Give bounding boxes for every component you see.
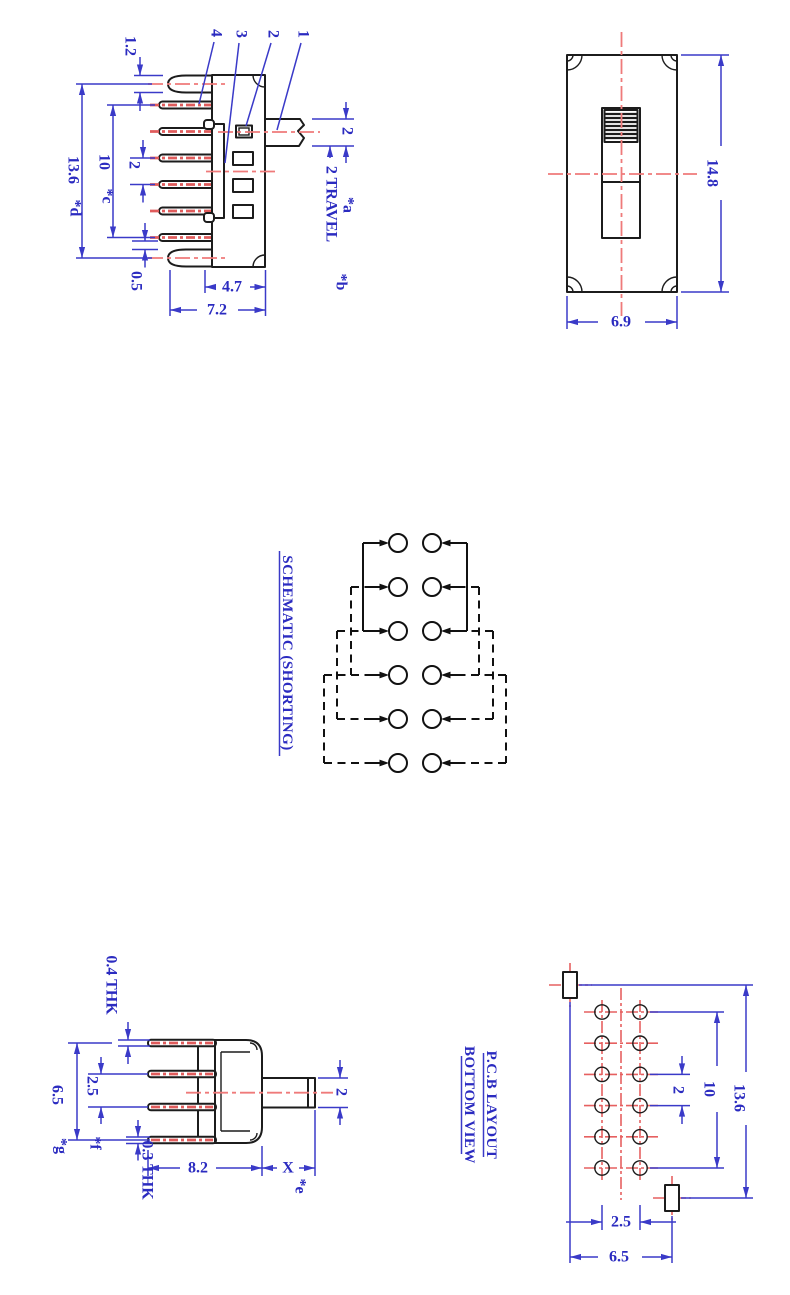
dim-body-depth: 8.2 [188, 1160, 208, 1177]
pcb-title-line2: BOTTOM VIEW [461, 1046, 477, 1164]
datasheet-drawing-page: 1.2 4 3 2 1 13.6 *d 10 *c 2 0.5 4.7 *b 7… [0, 0, 790, 1295]
dim-width: 6.9 [611, 314, 631, 331]
arrowhead-icon [441, 716, 451, 723]
pcb-title-line1: P.C.B LAYOUT [483, 1051, 499, 1160]
dim-actuator-thickness-end: 2 [333, 1088, 350, 1096]
dim-height-ref: *g [53, 1138, 70, 1154]
dim-terminal-pitch: 2 [126, 161, 143, 169]
contact-open [389, 534, 407, 552]
dim-body-width: 4.7 [222, 279, 242, 296]
dim-overall-width: 7.2 [207, 302, 227, 319]
pcb-pad [563, 972, 577, 998]
dim-terminal-pitch-end: 2.5 [84, 1076, 101, 1096]
callout-housing: 2 [265, 30, 282, 38]
dim-actuator-length: X [282, 1160, 294, 1177]
pcb-dimensions [566, 985, 753, 1263]
arrowhead-icon [380, 716, 390, 723]
pcb-dim-hole-span: 10 [701, 1081, 718, 1097]
arrowhead-icon [441, 628, 451, 635]
arrowhead-icon [380, 628, 390, 635]
dim-actuator-length-ref: *e [292, 1178, 309, 1193]
dim-body-width-ref: *b [333, 274, 350, 291]
pcb-dim-pad-span: 6.5 [609, 1249, 629, 1266]
contact-closed [389, 666, 407, 684]
dim-actuator-thickness: 2 [339, 127, 356, 135]
top-view: 14.8 6.9 [548, 32, 729, 331]
arrowhead-icon [380, 760, 390, 767]
arrowhead-icon [441, 760, 451, 767]
callout-terminal: 4 [208, 29, 225, 37]
side-view: 1.2 4 3 2 1 13.6 *d 10 *c 2 0.5 4.7 *b 7… [65, 29, 357, 319]
pcb-dim-total-height: 13.6 [731, 1084, 748, 1112]
contact-closed [423, 666, 441, 684]
dim-lug-thickness: 1.2 [122, 36, 139, 56]
dim-total-height-ref: *d [67, 200, 84, 217]
schematic-view: SCHEMATIC (SHORTING) [279, 534, 506, 772]
arrowhead-icon [441, 540, 451, 547]
dim-lug-gap: 0.5 [128, 271, 145, 291]
contact-open [389, 578, 407, 596]
contact-closed [423, 622, 441, 640]
schematic-terminals [389, 534, 441, 772]
contact-closed [389, 622, 407, 640]
dim-terminal-pitch-ref: *f [87, 1136, 104, 1150]
cover-tab [204, 120, 214, 129]
arrowhead-icon [380, 540, 390, 547]
callout-cover: 3 [233, 30, 250, 38]
arrowhead-icon [380, 584, 390, 591]
pcb-pad [665, 1185, 679, 1211]
pcb-dim-hole-pitch: 2 [670, 1086, 687, 1094]
dim-travel-ref: *a [340, 197, 357, 213]
dim-terminal-thickness: 0.3 THK [139, 1140, 156, 1200]
drawing-canvas: 1.2 4 3 2 1 13.6 *d 10 *c 2 0.5 4.7 *b 7… [0, 0, 790, 1295]
dim-terminal-span-ref: *c [99, 188, 116, 203]
dim-length: 14.8 [704, 159, 721, 187]
arrowhead-icon [441, 672, 451, 679]
arrowhead-icon [380, 672, 390, 679]
cover-tab [204, 213, 214, 222]
pcb-dim-column-pitch: 2.5 [611, 1214, 631, 1231]
dim-travel: 2 TRAVEL [323, 166, 340, 242]
switch-body-end [198, 1040, 262, 1143]
contact-open [423, 578, 441, 596]
contact-open [389, 754, 407, 772]
schematic-connections [324, 540, 506, 767]
end-view: 0.4 THK 6.5 *g 2.5 *f 0.3 THK 8.2 X *e 2 [49, 955, 350, 1200]
dim-height: 6.5 [49, 1085, 66, 1105]
arrowhead-icon [441, 584, 451, 591]
pcb-view: P.C.B LAYOUT BOTTOM VIEW 13.6 10 2 2.5 6… [461, 963, 753, 1266]
contact-open [389, 710, 407, 728]
dim-terminal-span: 10 [96, 154, 113, 170]
dim-total-height: 13.6 [65, 156, 82, 184]
dim-tab-thickness: 0.4 THK [103, 955, 120, 1015]
callout-actuator: 1 [295, 30, 312, 38]
contact-open [423, 754, 441, 772]
contact-open [423, 534, 441, 552]
schematic-title: SCHEMATIC (SHORTING) [279, 555, 295, 750]
contact-open [423, 710, 441, 728]
